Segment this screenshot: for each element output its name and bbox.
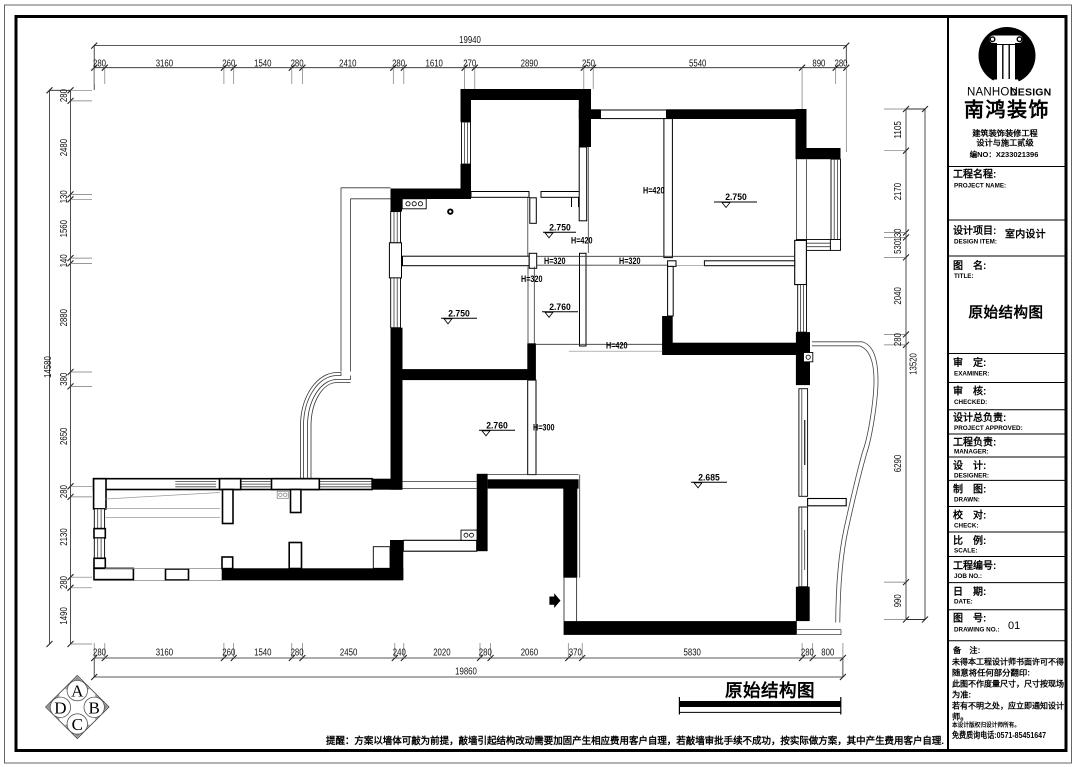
svg-text:530: 530 [893,241,904,254]
svg-text:280: 280 [93,648,106,659]
svg-text:编NO：X233021396: 编NO：X233021396 [970,149,1039,159]
svg-text:提醒：方案以墙体可敲为前提，敲墙引起结构改动需要加固产生相应: 提醒：方案以墙体可敲为前提，敲墙引起结构改动需要加固产生相应费用客户自理，若敲墙… [326,735,944,747]
svg-text:19940: 19940 [459,35,481,46]
svg-text:2.750: 2.750 [549,223,571,233]
svg-text:H=320: H=320 [544,256,566,266]
svg-text:DATE:: DATE: [954,599,973,606]
svg-text:为准:: 为准: [952,690,971,700]
svg-text:DESIGN: DESIGN [1010,87,1051,99]
svg-text:800: 800 [821,648,834,659]
svg-text:南鸿装饰: 南鸿装饰 [964,98,1050,122]
svg-text:280: 280 [93,59,106,70]
svg-text:3160: 3160 [156,59,174,70]
svg-text:EXAMINER:: EXAMINER: [954,371,989,378]
svg-text:2.760: 2.760 [486,421,508,431]
svg-text:130: 130 [893,228,904,241]
svg-text:设计项目:: 设计项目: [953,224,996,237]
svg-text:未得本工程设计师书面许可不得: 未得本工程设计师书面许可不得 [951,657,1064,667]
svg-text:280: 280 [801,648,814,659]
svg-text:原始结构图: 原始结构图 [969,304,1044,322]
svg-text:1540: 1540 [254,648,272,659]
svg-text:H=420: H=420 [571,236,593,246]
svg-text:日 期:: 日 期: [953,585,986,598]
svg-text:2410: 2410 [339,59,357,70]
svg-text:380: 380 [59,372,70,385]
svg-text:本设计版权归设计师所有。: 本设计版权归设计师所有。 [952,721,1020,729]
svg-text:2650: 2650 [59,427,70,445]
svg-text:备 注:: 备 注: [952,645,980,655]
svg-text:140: 140 [59,254,70,267]
svg-text:1490: 1490 [59,607,70,625]
svg-text:师。: 师。 [952,712,968,722]
svg-text:DESIGNER:: DESIGNER: [954,473,989,480]
svg-text:随意将任何部分翻印:: 随意将任何部分翻印: [952,668,1030,678]
svg-text:比 例:: 比 例: [953,534,986,547]
svg-text:2020: 2020 [433,648,451,659]
svg-text:审 核:: 审 核: [953,385,986,398]
svg-text:280: 280 [291,59,304,70]
svg-text:H=300: H=300 [533,423,555,433]
svg-text:C: C [72,715,83,734]
svg-text:CHECK:: CHECK: [954,523,979,530]
svg-text:免费质询电话:0571-85451647: 免费质询电话:0571-85451647 [952,729,1046,740]
svg-text:2.750: 2.750 [448,309,470,319]
svg-text:1610: 1610 [426,59,444,70]
svg-text:01: 01 [1008,620,1020,632]
svg-text:2890: 2890 [521,59,539,70]
svg-text:280: 280 [893,333,904,346]
svg-text:2880: 2880 [59,309,70,327]
svg-text:1540: 1540 [254,59,272,70]
svg-text:5830: 5830 [684,648,702,659]
svg-text:工程编号:: 工程编号: [953,559,996,572]
svg-text:原始结构图: 原始结构图 [725,681,815,701]
svg-text:3160: 3160 [156,648,174,659]
svg-text:270: 270 [463,59,476,70]
svg-text:250: 250 [582,59,595,70]
svg-text:2.685: 2.685 [698,473,720,483]
svg-text:校 对:: 校 对: [953,509,986,522]
svg-text:6290: 6290 [893,454,904,472]
svg-text:H=320: H=320 [521,274,543,284]
svg-text:14580: 14580 [43,356,54,378]
svg-text:工程名程:: 工程名程: [953,168,996,181]
svg-text:D: D [54,698,66,717]
svg-text:MANAGER:: MANAGER: [954,449,989,456]
svg-text:260: 260 [222,59,235,70]
svg-text:280: 280 [479,648,492,659]
svg-text:280: 280 [59,576,70,589]
svg-text:2.750: 2.750 [725,192,747,202]
svg-text:图 名:: 图 名: [953,259,986,272]
svg-text:2.760: 2.760 [549,302,571,312]
svg-text:H=420: H=420 [643,186,665,196]
svg-text:H=320: H=320 [619,256,641,266]
svg-text:370: 370 [569,648,582,659]
svg-text:室内设计: 室内设计 [1005,228,1046,241]
svg-text:JOB NO.:: JOB NO.: [954,573,982,580]
svg-text:图 号:: 图 号: [953,613,986,625]
svg-text:280: 280 [291,648,304,659]
svg-text:A: A [71,682,84,701]
svg-text:H=420: H=420 [606,341,628,351]
svg-text:工程负责:: 工程负责: [953,436,996,449]
svg-text:280: 280 [59,89,70,102]
svg-text:890: 890 [812,59,825,70]
svg-text:990: 990 [893,594,904,607]
svg-text:设计与施工贰级: 设计与施工贰级 [976,138,1034,148]
svg-text:5540: 5540 [689,59,707,70]
svg-text:2450: 2450 [340,648,358,659]
svg-text:2060: 2060 [521,648,539,659]
svg-text:此图不作度量尺寸，尺寸按现场: 此图不作度量尺寸，尺寸按现场 [952,679,1064,689]
svg-text:2480: 2480 [59,139,70,157]
svg-text:若有不明之处，应立即通知设计: 若有不明之处，应立即通知设计 [951,701,1065,711]
svg-text:SCALE:: SCALE: [954,548,977,555]
svg-text:19860: 19860 [455,667,477,678]
svg-text:DESIGN ITEM:: DESIGN ITEM: [954,239,997,246]
svg-text:DRAWN:: DRAWN: [954,497,980,504]
svg-text:1105: 1105 [893,121,904,139]
svg-text:280: 280 [835,59,848,70]
svg-text:制 图:: 制 图: [953,483,986,496]
svg-text:2130: 2130 [59,528,70,546]
svg-text:设 计:: 设 计: [953,459,986,472]
svg-text:13520: 13520 [909,353,920,375]
svg-text:2170: 2170 [893,183,904,201]
svg-text:设计总负责:: 设计总负责: [953,411,1006,424]
svg-text:CHECKED:: CHECKED: [954,399,987,406]
svg-text:130: 130 [59,190,70,203]
svg-text:TITLE:: TITLE: [954,273,974,280]
svg-text:280: 280 [392,59,405,70]
svg-text:260: 260 [222,648,235,659]
svg-text:DRAWING NO.:: DRAWING NO.: [954,627,999,634]
svg-text:240: 240 [393,648,406,659]
svg-text:280: 280 [59,485,70,498]
svg-text:2040: 2040 [893,287,904,305]
svg-text:建筑装饰装修工程: 建筑装饰装修工程 [972,128,1038,138]
svg-text:PROJECT NAME:: PROJECT NAME: [954,183,1006,190]
svg-text:1560: 1560 [59,220,70,238]
svg-text:B: B [89,698,100,717]
svg-text:PROJECT APPROVED:: PROJECT APPROVED: [954,425,1023,432]
svg-text:审 定:: 审 定: [953,356,986,369]
